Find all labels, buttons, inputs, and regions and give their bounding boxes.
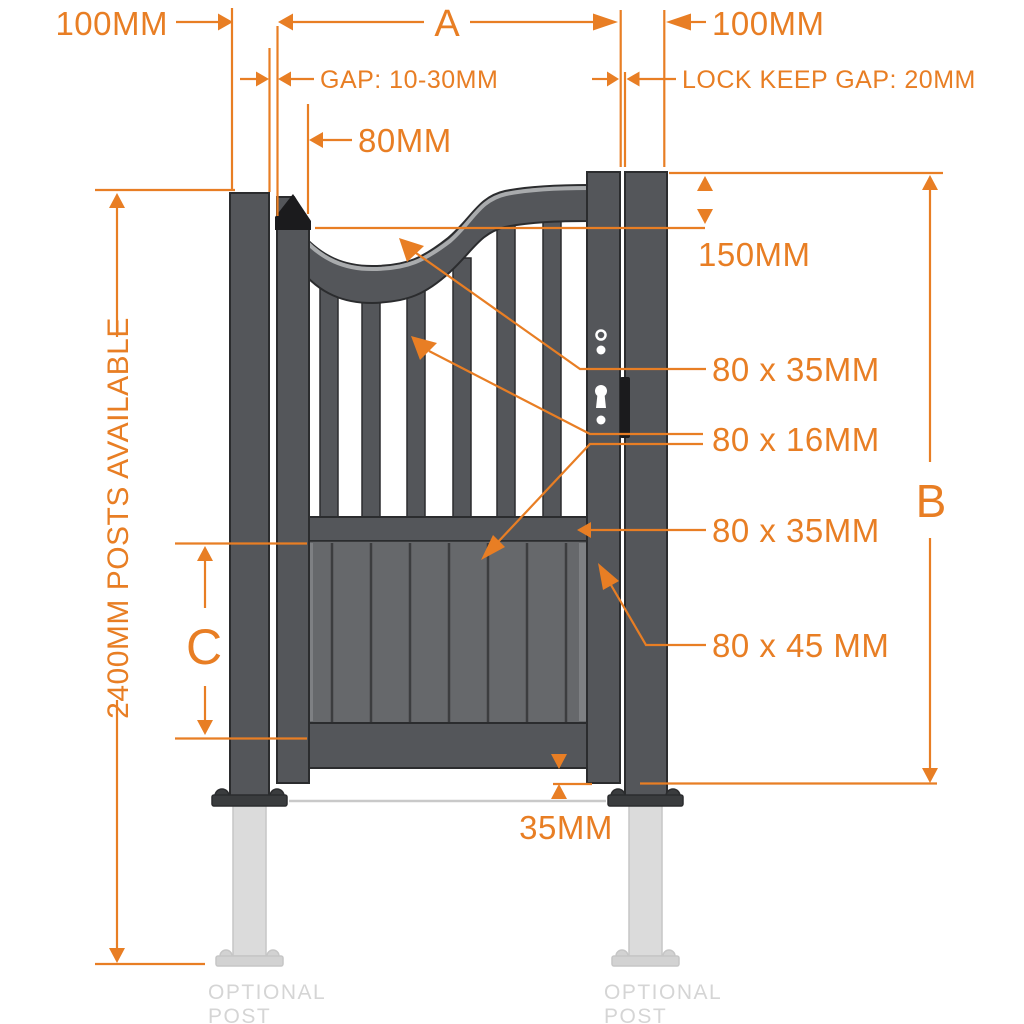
arrow-up-icon	[697, 176, 713, 191]
arrow-right-icon	[593, 14, 618, 31]
arrow-down-icon	[697, 209, 713, 224]
label-gate-width-a: A	[434, 3, 460, 45]
label-left-post-width: 100MM	[55, 5, 168, 42]
label-right-post-width: 100MM	[712, 5, 825, 42]
arrow-left-icon	[666, 14, 691, 31]
optional-post-right	[612, 805, 679, 966]
optional-post-caption-left: OPTIONAL POST	[208, 981, 326, 1024]
optional-post-left	[216, 805, 283, 966]
label-hinge-gap: GAP: 10-30MM	[320, 66, 498, 94]
gate-dimension-diagram: 100MM A 100MM GAP: 10-30MM LOCK KEEP GAP…	[0, 0, 1024, 1024]
arrow-left-icon	[278, 72, 291, 87]
label-infill-bar-size: 80 x 16MM	[712, 421, 880, 458]
label-posts-available: 2400MM POSTS AVAILABLE	[102, 317, 135, 719]
arrow-down-icon	[109, 948, 125, 963]
gate-diagram-svg: 100MM A 100MM GAP: 10-30MM LOCK KEEP GAP…	[0, 0, 1024, 1024]
keyhole-stem	[596, 394, 606, 408]
optional-post-text-line1: OPTIONAL	[208, 981, 326, 1004]
arrow-down-icon	[197, 720, 213, 735]
callout-mid-rail: 80 x 35MM	[577, 512, 880, 549]
gate-solid-panel	[306, 541, 588, 723]
gate-lock-stile	[587, 172, 620, 783]
optional-post-text-line1: OPTIONAL	[604, 981, 722, 1004]
dim-stile-width: 80MM	[308, 104, 452, 214]
lock-dot-upper	[597, 346, 606, 355]
arrow-up-icon	[197, 546, 213, 561]
gate-hinge-stile	[275, 194, 311, 783]
optional-post-text-line2: POST	[208, 1005, 271, 1024]
label-lock-keep-gap: LOCK KEEP GAP: 20MM	[682, 66, 976, 94]
left-post	[230, 193, 269, 797]
arrow-right-icon	[218, 14, 233, 31]
optional-post-text-line2: POST	[604, 1005, 667, 1024]
dim-hinge-gap: GAP: 10-30MM	[240, 48, 498, 192]
label-panel-height-c: C	[186, 619, 222, 675]
dim-posts-available: 2400MM POSTS AVAILABLE	[95, 190, 235, 964]
dim-left-post-width: 100MM	[55, 5, 233, 190]
arrow-up-icon	[109, 193, 125, 208]
right-post	[625, 172, 667, 797]
arrow-left-icon	[278, 14, 293, 31]
optional-post-caption-right: OPTIONAL POST	[604, 981, 722, 1024]
panel-edge-highlight-right	[579, 543, 586, 721]
dim-lock-keep-gap: LOCK KEEP GAP: 20MM	[592, 66, 976, 167]
dim-gate-width-a: A	[278, 3, 621, 216]
arrow-up-icon	[922, 175, 938, 190]
label-stile-width: 80MM	[358, 122, 452, 159]
arrow-up-icon	[551, 784, 567, 799]
arrow-left-icon	[627, 72, 640, 87]
label-gate-height-b: B	[916, 475, 947, 527]
arrow-left-icon	[309, 132, 323, 148]
gate-bottom-rail	[303, 723, 590, 768]
label-stile-size: 80 x 45 MM	[712, 627, 889, 664]
label-stile-drop: 35MM	[519, 809, 613, 846]
lock-keep	[620, 377, 630, 438]
arrow-down-icon	[922, 768, 938, 783]
label-top-rail-size: 80 x 35MM	[712, 351, 880, 388]
label-mid-rail-size: 80 x 35MM	[712, 512, 880, 549]
arrow-right-icon	[256, 72, 269, 87]
lock-dot-lower	[597, 416, 606, 425]
gate-mid-rail	[303, 517, 590, 541]
arrow-right-icon	[607, 72, 619, 87]
label-stile-rise: 150MM	[698, 236, 811, 273]
